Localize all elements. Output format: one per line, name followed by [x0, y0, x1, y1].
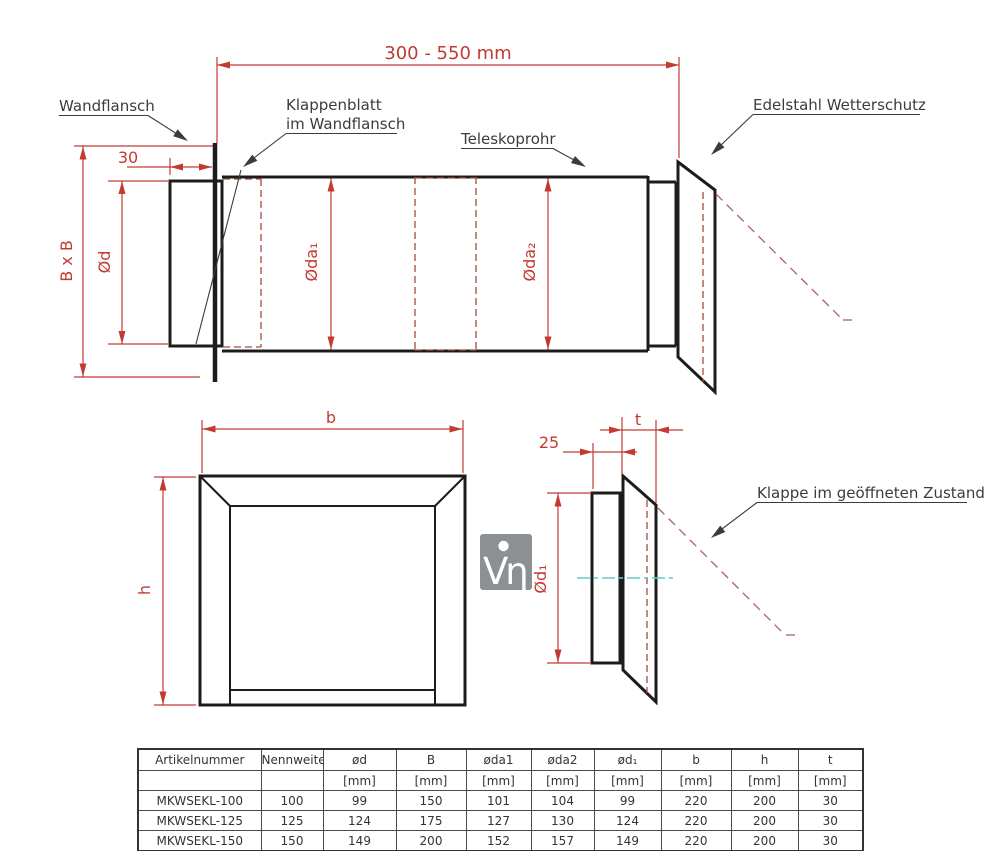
table-data-0-cell-4: 101 [466, 791, 531, 811]
table-data-1-cell-9: 30 [798, 811, 863, 831]
dim-outer-diameter-1: Øda₁ [302, 179, 335, 350]
dim-inner-diameter-label: Ød [95, 251, 114, 274]
table-data-1-cell-6: 124 [594, 811, 661, 831]
table-data-1-cell-2: 124 [323, 811, 396, 831]
table-units-cell-8: [mm] [731, 771, 798, 791]
table-header-cell-3: B [396, 749, 466, 771]
svg-text:Klappe im geöffneten Zustand: Klappe im geöffneten Zustand [757, 484, 985, 502]
table-data-0-cell-9: 30 [798, 791, 863, 811]
dim-duct-square-label: B x B [57, 240, 76, 282]
table-data-1-cell-0: MKWSEKL-125 [138, 811, 261, 831]
table-units-cell-5: [mm] [531, 771, 594, 791]
table-data-2-row: MKWSEKL-15015014920015215714922020030 [138, 831, 863, 851]
weather-guard-flap [678, 162, 715, 392]
spec-table: ArtikelnummerNennweiteødBøda1øda2ød₁bht[… [137, 748, 864, 851]
table-units-cell-3: [mm] [396, 771, 466, 791]
table-data-2-cell-4: 152 [466, 831, 531, 851]
front-view: b h [135, 408, 465, 705]
table-data-1-cell-1: 125 [261, 811, 323, 831]
table-units-cell-7: [mm] [661, 771, 731, 791]
table-data-0-cell-2: 99 [323, 791, 396, 811]
table-units-cell-9: [mm] [798, 771, 863, 791]
side-view: 25 t Ød₁ Klappe im geöffneten Zustand [531, 410, 985, 702]
table-units-cell-6: [mm] [594, 771, 661, 791]
dim-inner-diameter: Ød [95, 181, 168, 344]
table-data-2-cell-2: 149 [323, 831, 396, 851]
label-flap-blade: Klappenblatt im Wandflansch [243, 96, 405, 167]
brand-logo: Vη [480, 534, 532, 593]
table-header-cell-1: Nennweite [261, 749, 323, 771]
table-header-cell-9: t [798, 749, 863, 771]
table-header-cell-5: øda2 [531, 749, 594, 771]
table-data-2-cell-3: 200 [396, 831, 466, 851]
table-header-cell-0: Artikelnummer [138, 749, 261, 771]
front-outer-frame [200, 476, 465, 705]
label-telescopic-tube: Teleskoprohr [460, 130, 586, 167]
weather-guard-open-trace [716, 194, 858, 320]
table-data-0-cell-6: 99 [594, 791, 661, 811]
telescopic-tube [222, 176, 676, 351]
table-data-2-cell-0: MKWSEKL-150 [138, 831, 261, 851]
table-header-cell-2: ød [323, 749, 396, 771]
dim-flange-depth: 30 [118, 148, 212, 175]
svg-text:Edelstahl Wetterschutz: Edelstahl Wetterschutz [753, 96, 926, 114]
dim-outer-diameter-2: Øda₂ [520, 179, 552, 350]
dim-side-thickness-label: t [635, 410, 641, 429]
table-header-row: ArtikelnummerNennweiteødBøda1øda2ød₁bht [138, 749, 863, 771]
dim-outer-diameter-1-label: Øda₁ [302, 243, 321, 282]
dim-side-flap-diameter-label: Ød₁ [531, 564, 550, 593]
dim-front-height: h [135, 477, 196, 705]
table-header-cell-6: ød₁ [594, 749, 661, 771]
side-open-trace [658, 508, 800, 635]
table-data-2-cell-8: 200 [731, 831, 798, 851]
table-header-cell-7: b [661, 749, 731, 771]
table-data-0-row: MKWSEKL-100100991501011049922020030 [138, 791, 863, 811]
table-data-2-cell-9: 30 [798, 831, 863, 851]
table-units-row: [mm][mm][mm][mm][mm][mm][mm][mm] [138, 771, 863, 791]
table-data-0-cell-8: 200 [731, 791, 798, 811]
label-wall-flange: Wandflansch [59, 97, 188, 141]
table-units-cell-4: [mm] [466, 771, 531, 791]
table-units-cell-2: [mm] [323, 771, 396, 791]
table-units-cell-0 [138, 771, 261, 791]
table-data-0-cell-3: 150 [396, 791, 466, 811]
table-header-cell-8: h [731, 749, 798, 771]
table-data-1-cell-5: 130 [531, 811, 594, 831]
label-weather-guard: Edelstahl Wetterschutz [711, 96, 926, 155]
logo-glyph: Vη [483, 550, 526, 593]
table-data-0-cell-5: 104 [531, 791, 594, 811]
table-data-0-cell-7: 220 [661, 791, 731, 811]
table-data-1-cell-7: 220 [661, 811, 731, 831]
table-data-2-cell-1: 150 [261, 831, 323, 851]
dim-length-range-label: 300 - 550 mm [384, 43, 511, 64]
table-units-cell-1 [261, 771, 323, 791]
dim-side-thickness: t [600, 410, 683, 503]
table-data-0-cell-0: MKWSEKL-100 [138, 791, 261, 811]
svg-text:im Wandflansch: im Wandflansch [286, 115, 405, 133]
dim-flange-depth-label: 30 [118, 148, 138, 167]
table-data-2-cell-6: 149 [594, 831, 661, 851]
page: 300 - 550 mm 30 B x B Ød [0, 0, 1000, 851]
table-data-1-cell-8: 200 [731, 811, 798, 831]
svg-text:Wandflansch: Wandflansch [59, 97, 155, 115]
table-header-cell-4: øda1 [466, 749, 531, 771]
top-view: 300 - 550 mm 30 B x B Ød [57, 43, 926, 392]
dim-outer-diameter-2-label: Øda₂ [520, 243, 539, 282]
side-flap [623, 476, 656, 702]
label-open-flap: Klappe im geöffneten Zustand [711, 484, 985, 538]
table-data-1-cell-3: 175 [396, 811, 466, 831]
table-data-1-row: MKWSEKL-12512512417512713012422020030 [138, 811, 863, 831]
table-data-0-cell-1: 100 [261, 791, 323, 811]
dim-front-width-label: b [326, 408, 336, 427]
table-data-2-cell-7: 220 [661, 831, 731, 851]
dim-front-height-label: h [135, 585, 154, 595]
table-data-1-cell-4: 127 [466, 811, 531, 831]
svg-text:Teleskoprohr: Teleskoprohr [460, 130, 556, 148]
technical-drawing: 300 - 550 mm 30 B x B Ød [0, 0, 1000, 745]
table-data-2-cell-5: 157 [531, 831, 594, 851]
dim-front-width: b [202, 408, 463, 473]
telescope-overlap-hidden [415, 177, 476, 351]
dim-side-offset-label: 25 [539, 433, 559, 452]
svg-text:Klappenblatt: Klappenblatt [286, 96, 382, 114]
flap-blade-hidden [223, 179, 261, 347]
